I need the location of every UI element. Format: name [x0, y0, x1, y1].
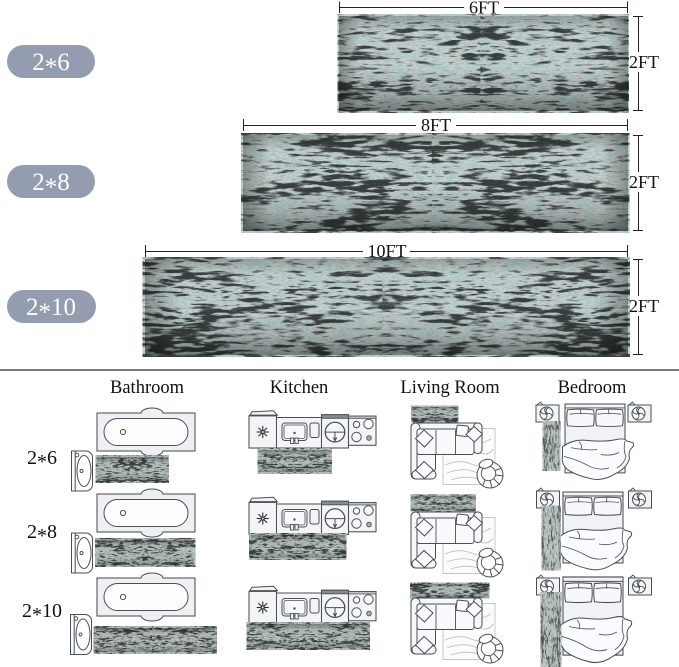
- svg-text:Living Room: Living Room: [400, 378, 500, 398]
- svg-text:6FT: 6FT: [469, 0, 499, 18]
- svg-text:10FT: 10FT: [367, 241, 406, 261]
- svg-text:2FT: 2FT: [629, 296, 659, 316]
- svg-text:8FT: 8FT: [421, 115, 451, 135]
- svg-text:Kitchen: Kitchen: [270, 378, 329, 398]
- svg-text:2FT: 2FT: [629, 172, 659, 192]
- svg-text:Bathroom: Bathroom: [110, 378, 185, 398]
- svg-text:Bedroom: Bedroom: [558, 378, 627, 398]
- svg-text:2FT: 2FT: [629, 52, 659, 72]
